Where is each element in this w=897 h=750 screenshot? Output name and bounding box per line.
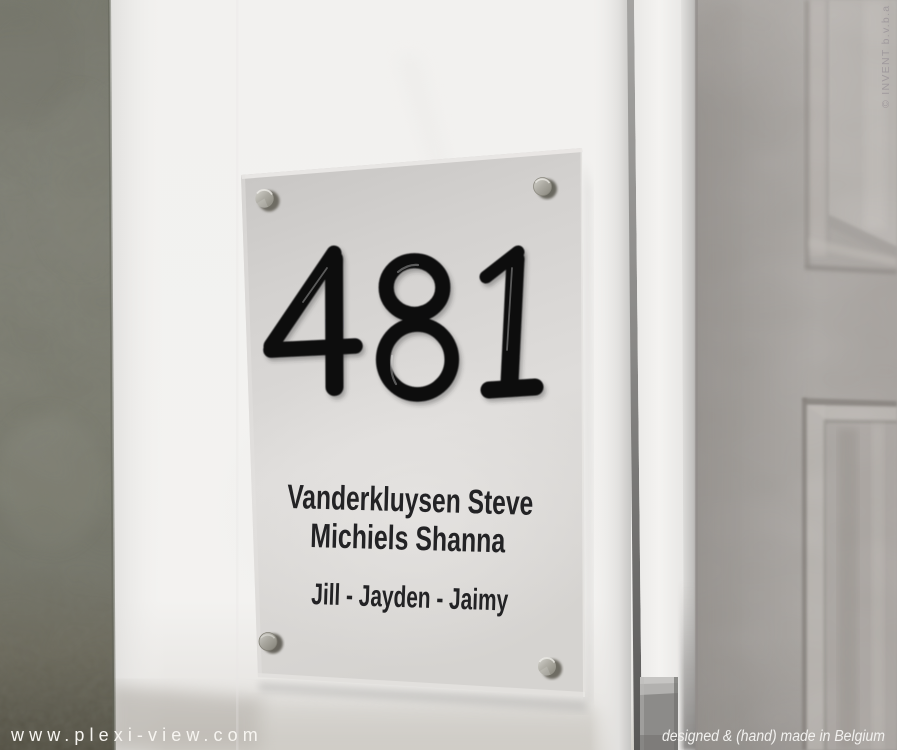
svg-text:Michiels Shanna: Michiels Shanna [310,517,507,560]
svg-text:www.plexi-view.com: www.plexi-view.com [10,725,263,745]
svg-text:© INVENT b.v.b.a: © INVENT b.v.b.a [880,5,892,108]
svg-text:designed & (hand) made in Belg: designed & (hand) made in Belgium [662,728,885,745]
svg-text:Jill - Jayden - Jaimy: Jill - Jayden - Jaimy [311,578,509,618]
svg-text:Vanderkluysen Steve: Vanderkluysen Steve [287,478,534,523]
